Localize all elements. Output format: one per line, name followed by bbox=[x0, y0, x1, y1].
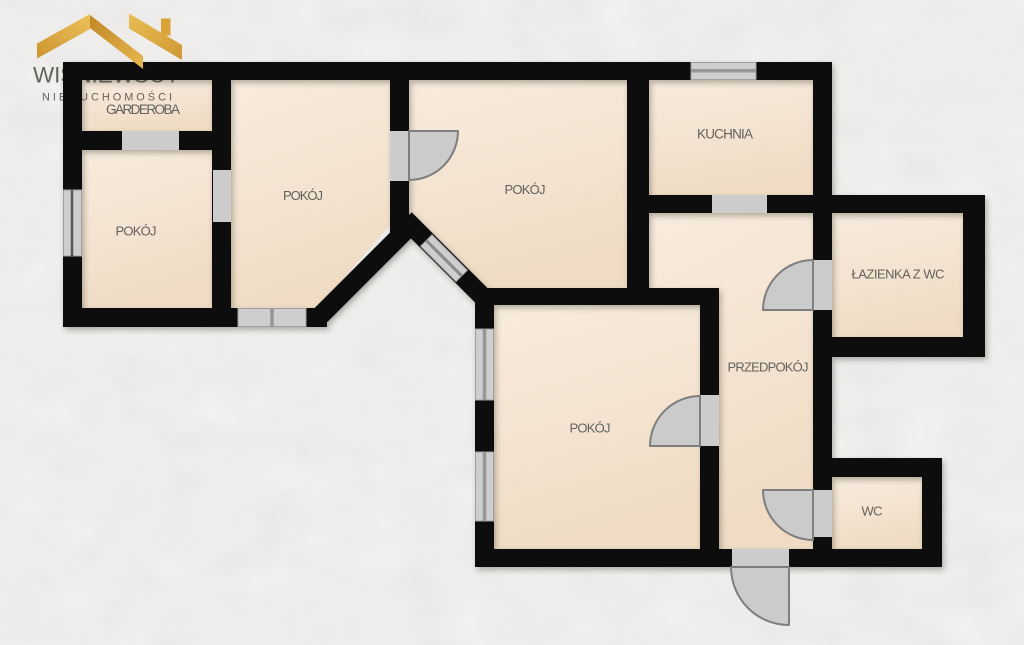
svg-text:POKÓJ: POKÓJ bbox=[505, 182, 546, 197]
svg-text:POKÓJ: POKÓJ bbox=[570, 421, 611, 436]
svg-text:GARDEROBA: GARDEROBA bbox=[106, 102, 180, 117]
svg-text:KUCHNIA: KUCHNIA bbox=[697, 127, 753, 142]
svg-text:PRZEDPOKÓJ: PRZEDPOKÓJ bbox=[728, 360, 809, 375]
svg-text:POKÓJ: POKÓJ bbox=[116, 224, 157, 239]
svg-text:POKÓJ: POKÓJ bbox=[283, 188, 323, 203]
svg-text:WC: WC bbox=[862, 504, 883, 519]
svg-text:ŁAZIENKA Z WC: ŁAZIENKA Z WC bbox=[852, 267, 945, 282]
